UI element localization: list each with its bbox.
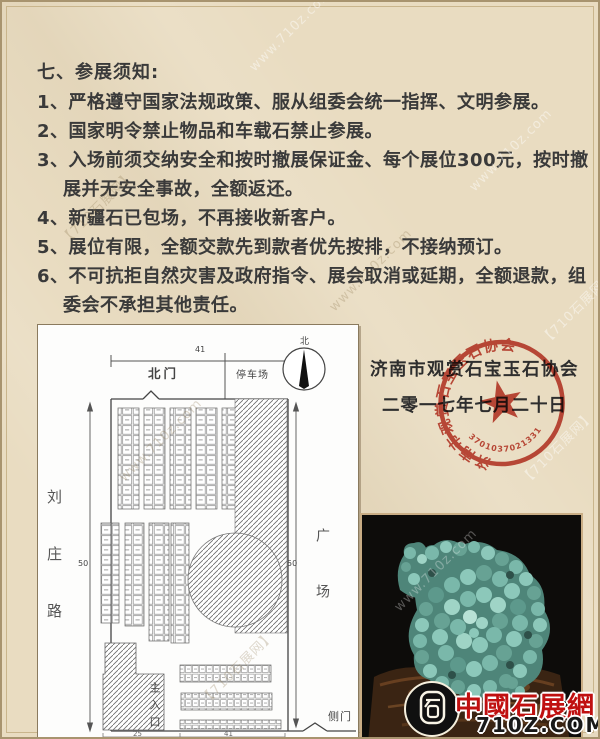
notice-item-4: 4、新疆石已包场，不再接收新客户。 [37, 204, 597, 233]
side-gate-label: 侧门 [328, 708, 352, 724]
hatched-circle [188, 533, 282, 627]
notice-item-1: 1、严格遵守国家法规政策、服从组委会统一指挥、文明参展。 [37, 88, 597, 117]
notice-item-5: 5、展位有限，全额交款先到款者优先按排，不接纳预订。 [37, 233, 597, 262]
north-gate-label: 北门 [148, 363, 179, 382]
dim-right-label: 50 [287, 559, 297, 568]
dim-top-label: 41 [195, 345, 205, 354]
notice-item-3: 3、入场前须交纳安全和按时撤展保证金、每个展位300元，按时撤展并无安全事故，全… [37, 146, 597, 204]
seal-star [476, 376, 526, 425]
floorplan-drawing [38, 325, 358, 739]
official-seal-stamp: 济南市观赏石宝玉石协会 3701037021331 [412, 315, 592, 495]
compass-icon [283, 348, 325, 390]
dim-bottom-right-label: 41 [224, 730, 233, 738]
notice-title: 七、参展须知: [37, 58, 597, 88]
flyer-page: 七、参展须知: 1、严格遵守国家法规政策、服从组委会统一指挥、文明参展。 2、国… [0, 0, 600, 739]
parking-label: 停车场 [236, 366, 269, 381]
notice-item-6: 6、不可抗拒自然灾害及政府指令、展会取消或延期，全额退款，组委会不承担其他责任。 [37, 262, 597, 320]
road-label: 刘庄路 [44, 489, 65, 660]
plaza-label: 广场 [312, 528, 332, 640]
compass-north-label: 北 [300, 334, 309, 347]
main-entrance-label: 主入口 [146, 682, 162, 733]
dim-left-label: 50 [78, 559, 88, 568]
logo-domain: 710Z.COM [476, 713, 600, 737]
stone-expo-logo-icon [402, 679, 462, 739]
notice-item-2: 2、国家明令禁止物品和车载石禁止参展。 [37, 117, 597, 146]
exhibition-notice: 七、参展须知: 1、严格遵守国家法规政策、服从组委会统一指挥、文明参展。 2、国… [37, 58, 597, 320]
dim-bottom-left-label: 25 [133, 730, 142, 738]
venue-floorplan: 41 北门 停车场 北 刘庄路 50 50 广场 主入口 侧门 25 41 [37, 324, 359, 739]
